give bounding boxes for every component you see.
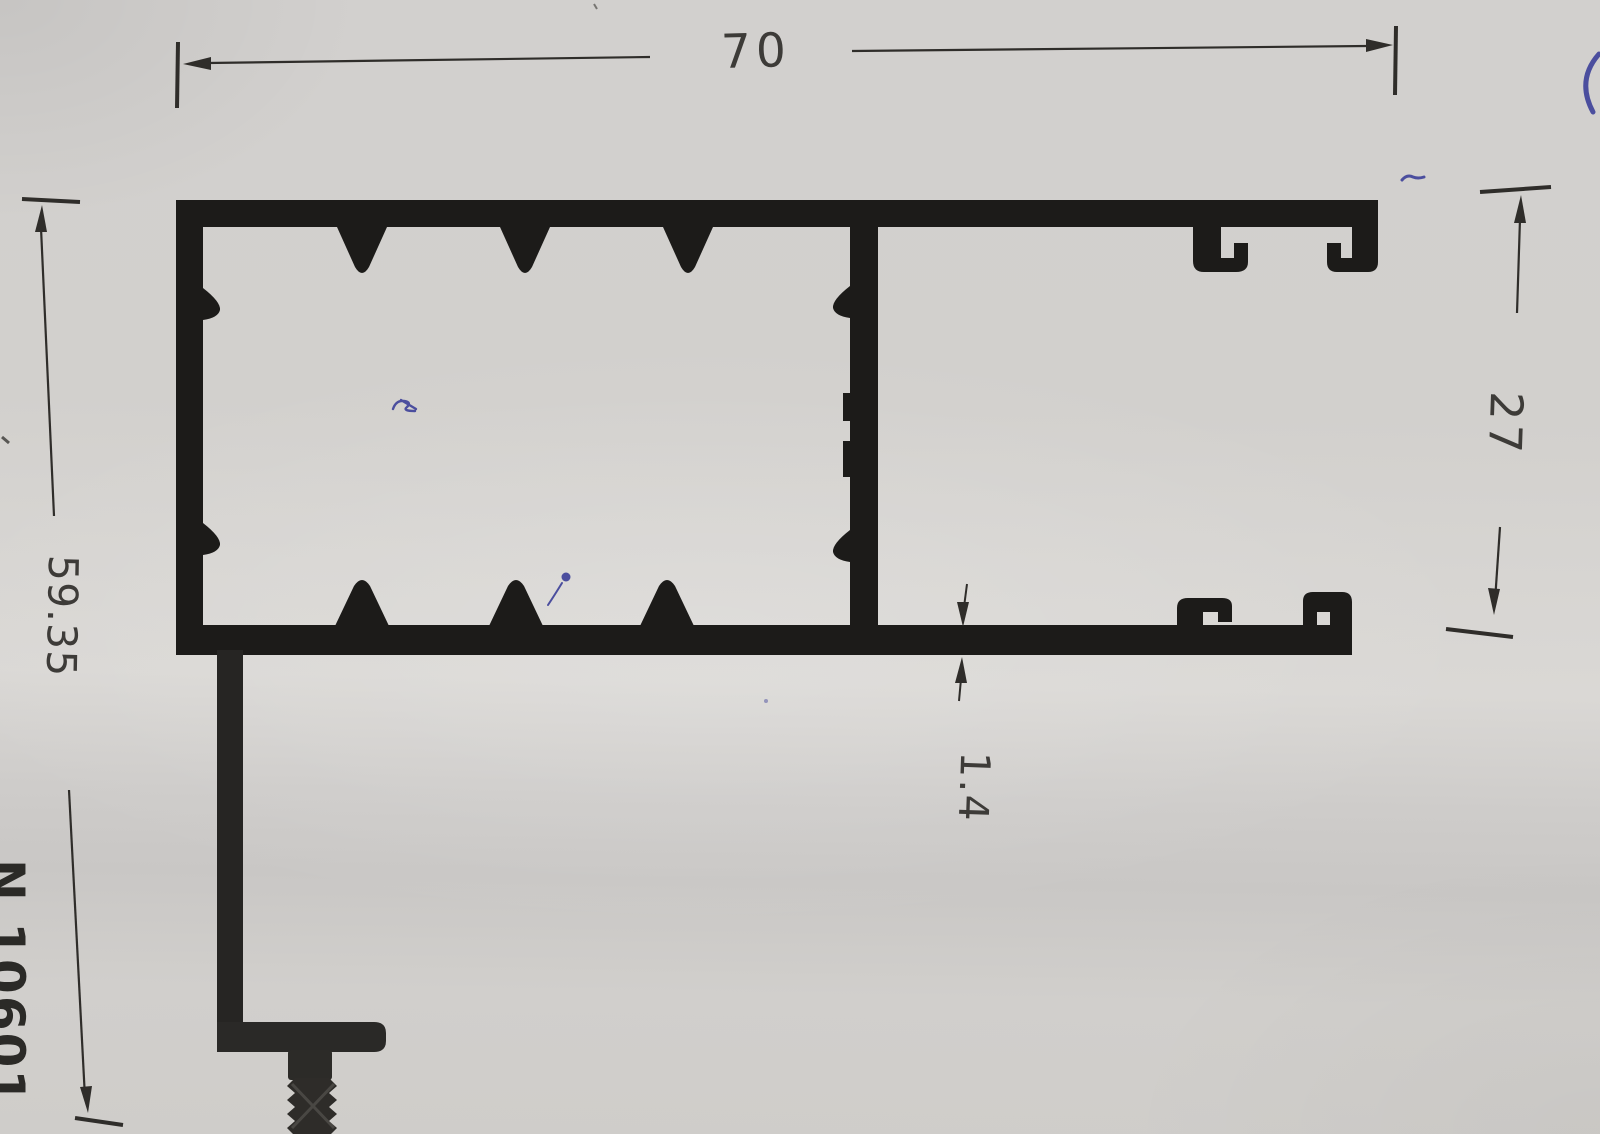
arrowhead-left	[183, 57, 211, 70]
profile-drawing-svg	[0, 0, 1600, 1134]
bottom-tooth	[335, 580, 389, 626]
dimension-line	[41, 228, 54, 516]
leg-wall	[217, 650, 243, 1027]
top-end-hook	[1327, 243, 1352, 272]
dimension-line	[852, 46, 1367, 51]
pen-dot-tail	[548, 583, 562, 605]
arrowhead-down	[957, 602, 969, 627]
dimension-line	[1517, 219, 1520, 313]
arrowhead-up	[1514, 195, 1526, 223]
arrowhead-right	[1366, 39, 1393, 52]
pen-speck	[764, 699, 768, 703]
extension-tick	[1480, 187, 1551, 192]
extension-tick	[75, 1118, 123, 1125]
arrowhead-down	[1488, 588, 1500, 615]
bottom-tooth	[640, 580, 694, 626]
bottom-wall	[176, 625, 1352, 655]
dimension-label-overall-height: 59.35	[24, 513, 88, 718]
scanned-technical-drawing: 70 27 59.35 1.4 N 10601	[0, 0, 1600, 1134]
divider-bump	[843, 393, 851, 421]
dimension-line	[208, 57, 650, 63]
pen-arc-mark	[1586, 54, 1599, 112]
bottom-hook	[1177, 598, 1232, 628]
pen-dot-mark	[562, 573, 571, 582]
extension-tick	[1395, 26, 1396, 95]
screw-boss-block	[288, 1050, 332, 1080]
dimension-label-frame-height: 27	[1470, 363, 1534, 485]
left-wall-nub	[203, 523, 220, 555]
pen-squiggle-mark	[1402, 176, 1424, 180]
divider-bump	[843, 441, 852, 477]
left-wall	[176, 200, 203, 655]
top-wall-end	[1352, 200, 1378, 272]
pen-marks	[2, 4, 1599, 703]
pen-squiggle-mark	[393, 400, 416, 411]
top-wall	[176, 200, 1378, 227]
top-hook	[1193, 227, 1248, 272]
dimension-line	[69, 790, 85, 1098]
extension-tick	[177, 42, 178, 108]
part-number-label: N 10601	[0, 859, 35, 1083]
left-wall-nub	[203, 288, 220, 320]
bottom-tooth	[489, 580, 543, 626]
arrowhead-up	[35, 205, 47, 232]
foot-flange	[217, 1022, 386, 1052]
divider-nub	[833, 286, 850, 318]
divider-nub	[833, 530, 850, 562]
top-tooth	[663, 227, 713, 273]
extension-tick	[1446, 629, 1513, 637]
pencil-speck	[594, 4, 597, 9]
profile-cross-section	[176, 200, 1378, 1134]
top-tooth	[337, 227, 387, 273]
top-tooth	[500, 227, 550, 273]
divider-wall	[850, 202, 878, 652]
pencil-speck	[2, 437, 9, 443]
dimension-label-overall-width: 70	[697, 22, 814, 80]
extension-tick	[22, 199, 80, 202]
arrowhead-down	[80, 1086, 92, 1113]
dimension-label-wall-thickness: 1.4	[936, 726, 1000, 848]
